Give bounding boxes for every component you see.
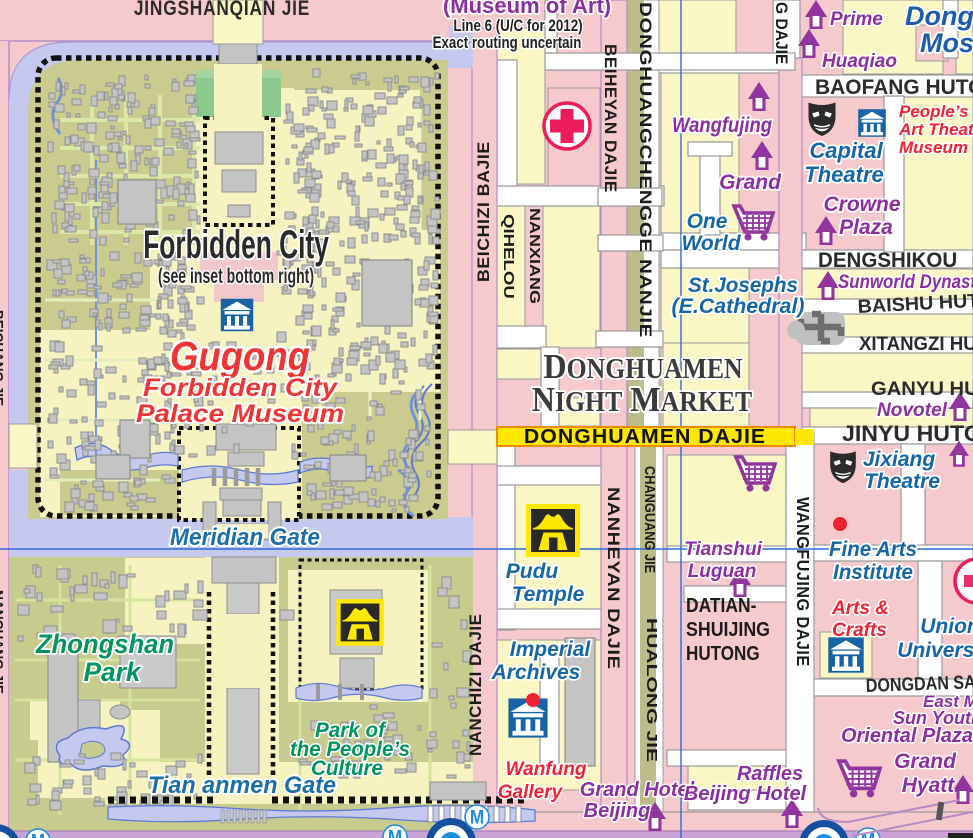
svg-text:XITANGZI HUTONG: XITANGZI HUTONG	[859, 332, 973, 354]
svg-text:Theatre: Theatre	[804, 162, 883, 187]
svg-text:Tian anmen Gate: Tian anmen Gate	[148, 772, 336, 799]
svg-text:DATIAN-: DATIAN-	[686, 594, 756, 616]
svg-text:Theatre: Theatre	[864, 470, 940, 493]
svg-text:BEICHIZI BAJIE: BEICHIZI BAJIE	[475, 141, 494, 282]
svg-text:Culture: Culture	[311, 757, 383, 780]
svg-text:Wangfujing: Wangfujing	[672, 114, 772, 137]
svg-text:WANGFUJING DAJIE: WANGFUJING DAJIE	[793, 497, 813, 667]
svg-text:Park: Park	[84, 657, 143, 687]
svg-text:St.Josephs: St.Josephs	[688, 274, 798, 297]
svg-text:Institute: Institute	[833, 561, 913, 584]
svg-text:Gugong: Gugong	[170, 333, 310, 379]
svg-text:Museum: Museum	[899, 138, 968, 157]
svg-text:University: University	[897, 639, 973, 662]
svg-text:NANHEYAN DAJIE: NANHEYAN DAJIE	[604, 487, 623, 669]
svg-text:Grand Hotel: Grand Hotel	[580, 779, 695, 801]
svg-text:BAOFANG HUTONG: BAOFANG HUTONG	[815, 76, 973, 99]
svg-text:Beijing: Beijing	[584, 800, 651, 822]
svg-text:Beijing Hotel: Beijing Hotel	[684, 783, 807, 805]
svg-text:Hyatt: Hyatt	[902, 774, 956, 797]
svg-text:Capital: Capital	[809, 138, 883, 163]
svg-text:Crafts: Crafts	[832, 620, 887, 641]
svg-text:People’s: People’s	[899, 102, 969, 121]
svg-text:Temple: Temple	[512, 583, 585, 606]
svg-text:NANXIANG: NANXIANG	[527, 208, 544, 304]
svg-text:Luguan: Luguan	[688, 561, 757, 582]
svg-text:Gallery: Gallery	[498, 782, 564, 803]
svg-text:Crowne: Crowne	[823, 193, 900, 216]
svg-text:Exact routing uncertain: Exact routing uncertain	[433, 34, 582, 52]
svg-text:NANCHIZI DAJIE: NANCHIZI DAJIE	[467, 614, 486, 756]
svg-text:Wanfung: Wanfung	[506, 759, 587, 780]
svg-text:Huaqiao: Huaqiao	[822, 51, 897, 72]
svg-text:G DAJIE: G DAJIE	[772, 2, 791, 64]
svg-text:Archives: Archives	[491, 661, 581, 684]
svg-text:Sunworld Dynast: Sunworld Dynast	[838, 272, 973, 293]
svg-text:Union: Union	[920, 615, 973, 638]
svg-text:Fine Arts: Fine Arts	[829, 538, 917, 561]
svg-text:Novotel: Novotel	[877, 400, 948, 421]
svg-text:Dongsi: Dongsi	[905, 1, 973, 31]
svg-text:(Museum of Art): (Museum of Art)	[443, 0, 611, 18]
svg-text:Raffles: Raffles	[737, 763, 803, 785]
svg-text:Oriental Plaza: Oriental Plaza	[841, 725, 973, 747]
svg-text:Forbidden City: Forbidden City	[143, 374, 338, 402]
svg-text:NANCHANG JIE: NANCHANG JIE	[0, 590, 6, 694]
svg-text:BEIHEYAN DAJIE: BEIHEYAN DAJIE	[601, 44, 620, 193]
svg-text:Forbidden City: Forbidden City	[143, 222, 329, 267]
svg-text:HUALONG JIE: HUALONG JIE	[644, 618, 661, 762]
svg-text:Jixiang: Jixiang	[863, 448, 936, 471]
svg-text:JINGSHANQIAN JIE: JINGSHANQIAN JIE	[134, 0, 310, 20]
svg-text:Line 6 (U/C for 2012): Line 6 (U/C for 2012)	[453, 17, 582, 35]
svg-text:(E.Cathedral): (E.Cathedral)	[672, 295, 805, 318]
svg-text:CHANGUANG JIE: CHANGUANG JIE	[642, 466, 659, 573]
svg-text:Prime: Prime	[830, 9, 883, 30]
svg-text:Grand: Grand	[894, 750, 957, 773]
svg-text:JINYU HUTONG: JINYU HUTONG	[842, 422, 973, 446]
svg-text:One: One	[687, 210, 728, 233]
svg-text:World: World	[681, 232, 741, 255]
svg-text:Mosque: Mosque	[920, 28, 973, 58]
svg-text:Tianshui: Tianshui	[684, 539, 762, 560]
svg-text:Art Theatre: Art Theatre	[898, 120, 973, 139]
svg-text:DONGHUAMEN DAJIE: DONGHUAMEN DAJIE	[524, 425, 766, 448]
svg-text:DENGSHIKOU: DENGSHIKOU	[818, 249, 957, 272]
svg-text:Grand: Grand	[719, 171, 782, 194]
svg-text:SHUIJING: SHUIJING	[686, 618, 770, 640]
svg-text:BEICHANG JIE: BEICHANG JIE	[0, 310, 6, 406]
svg-text:(see inset bottom right): (see inset bottom right)	[158, 264, 314, 287]
svg-text:Plaza: Plaza	[839, 216, 893, 239]
svg-text:DONGHUANGCHENGGE NANJIE: DONGHUANGCHENGGE NANJIE	[636, 2, 655, 338]
svg-text:NIGHT MARKET: NIGHT MARKET	[532, 381, 753, 420]
svg-text:GANYU HUTONG: GANYU HUTONG	[871, 377, 973, 399]
svg-text:Zhongshan: Zhongshan	[35, 629, 174, 659]
svg-text:Pudu: Pudu	[506, 560, 559, 583]
svg-text:HUTONG: HUTONG	[686, 642, 760, 664]
svg-text:Imperial: Imperial	[510, 638, 592, 661]
svg-text:Meridian Gate: Meridian Gate	[170, 524, 320, 551]
svg-text:Arts &: Arts &	[831, 598, 889, 619]
svg-text:Palace Museum: Palace Museum	[136, 400, 344, 428]
svg-text:QIHELOU: QIHELOU	[501, 214, 518, 299]
